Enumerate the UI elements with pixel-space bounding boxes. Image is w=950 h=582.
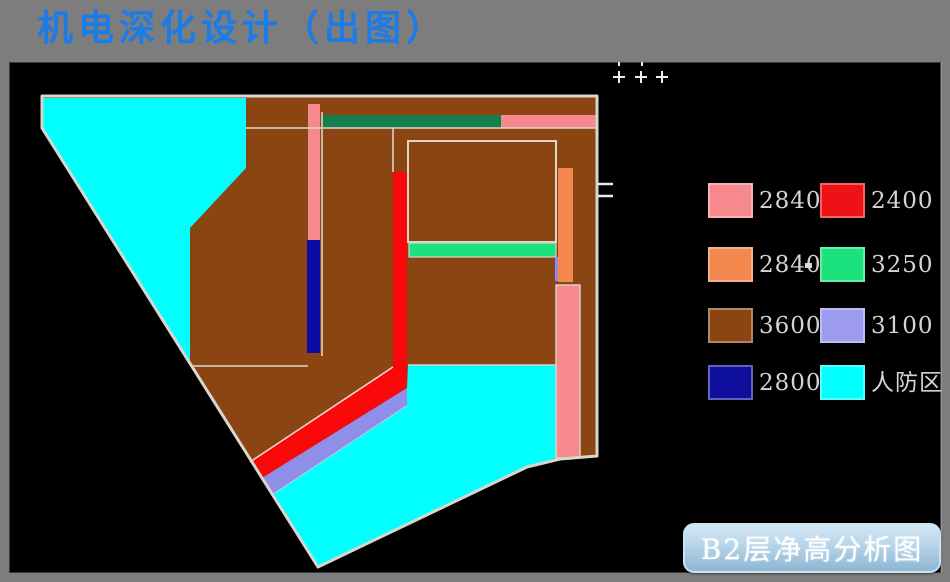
legend-label: 2400 (871, 183, 934, 219)
legend-swatch-3250-green (820, 247, 865, 282)
legend-swatch-2840-pink (708, 183, 753, 218)
region-2840-orange-vstripe (558, 168, 573, 282)
region-3250-spring-bar (409, 243, 556, 257)
legend-label: 3250 (871, 247, 934, 283)
legend-swatch-2800-navy (708, 365, 753, 400)
region-3250-darkgreen-bar (323, 115, 501, 128)
region-inner-room (408, 141, 556, 242)
application-window: 机电深化设计（出图） (0, 0, 950, 582)
drawing-caption-button[interactable]: B2层净高分析图 (683, 523, 941, 573)
legend-label: 2840 (759, 183, 822, 219)
legend-label: 2840 (759, 247, 822, 283)
dimension-ticks (598, 184, 613, 196)
region-2840-pink-vstripe (308, 104, 320, 242)
legend-swatch-3600-brown (708, 308, 753, 343)
region-2840-pink-topbar (501, 115, 596, 128)
legend-swatch-civil-defense-cyan (820, 365, 865, 400)
legend-swatch-2400-red (820, 183, 865, 218)
legend-label: 3100 (871, 308, 934, 344)
drawing-canvas[interactable]: 2840 2400 2840 3250 3600 3100 2800 人防区 (9, 62, 942, 573)
region-3100-sliver (555, 257, 558, 281)
region-2400-red-vstripe (393, 172, 407, 368)
crosshair-marks (613, 62, 668, 83)
region-2800-navy-vstripe (307, 240, 320, 353)
legend-label: 2800 (759, 365, 822, 401)
drawing-caption-text: B2层净高分析图 (701, 528, 923, 568)
region-2840-pink-right (556, 285, 580, 458)
legend-label: 3600 (759, 308, 822, 344)
page-title: 机电深化设计（出图） (37, 0, 447, 56)
legend-label: 人防区 (871, 365, 943, 401)
legend-swatch-3100-periwinkle (820, 308, 865, 343)
legend-dash-mark (805, 263, 812, 268)
legend-swatch-2840-orange (708, 247, 753, 282)
